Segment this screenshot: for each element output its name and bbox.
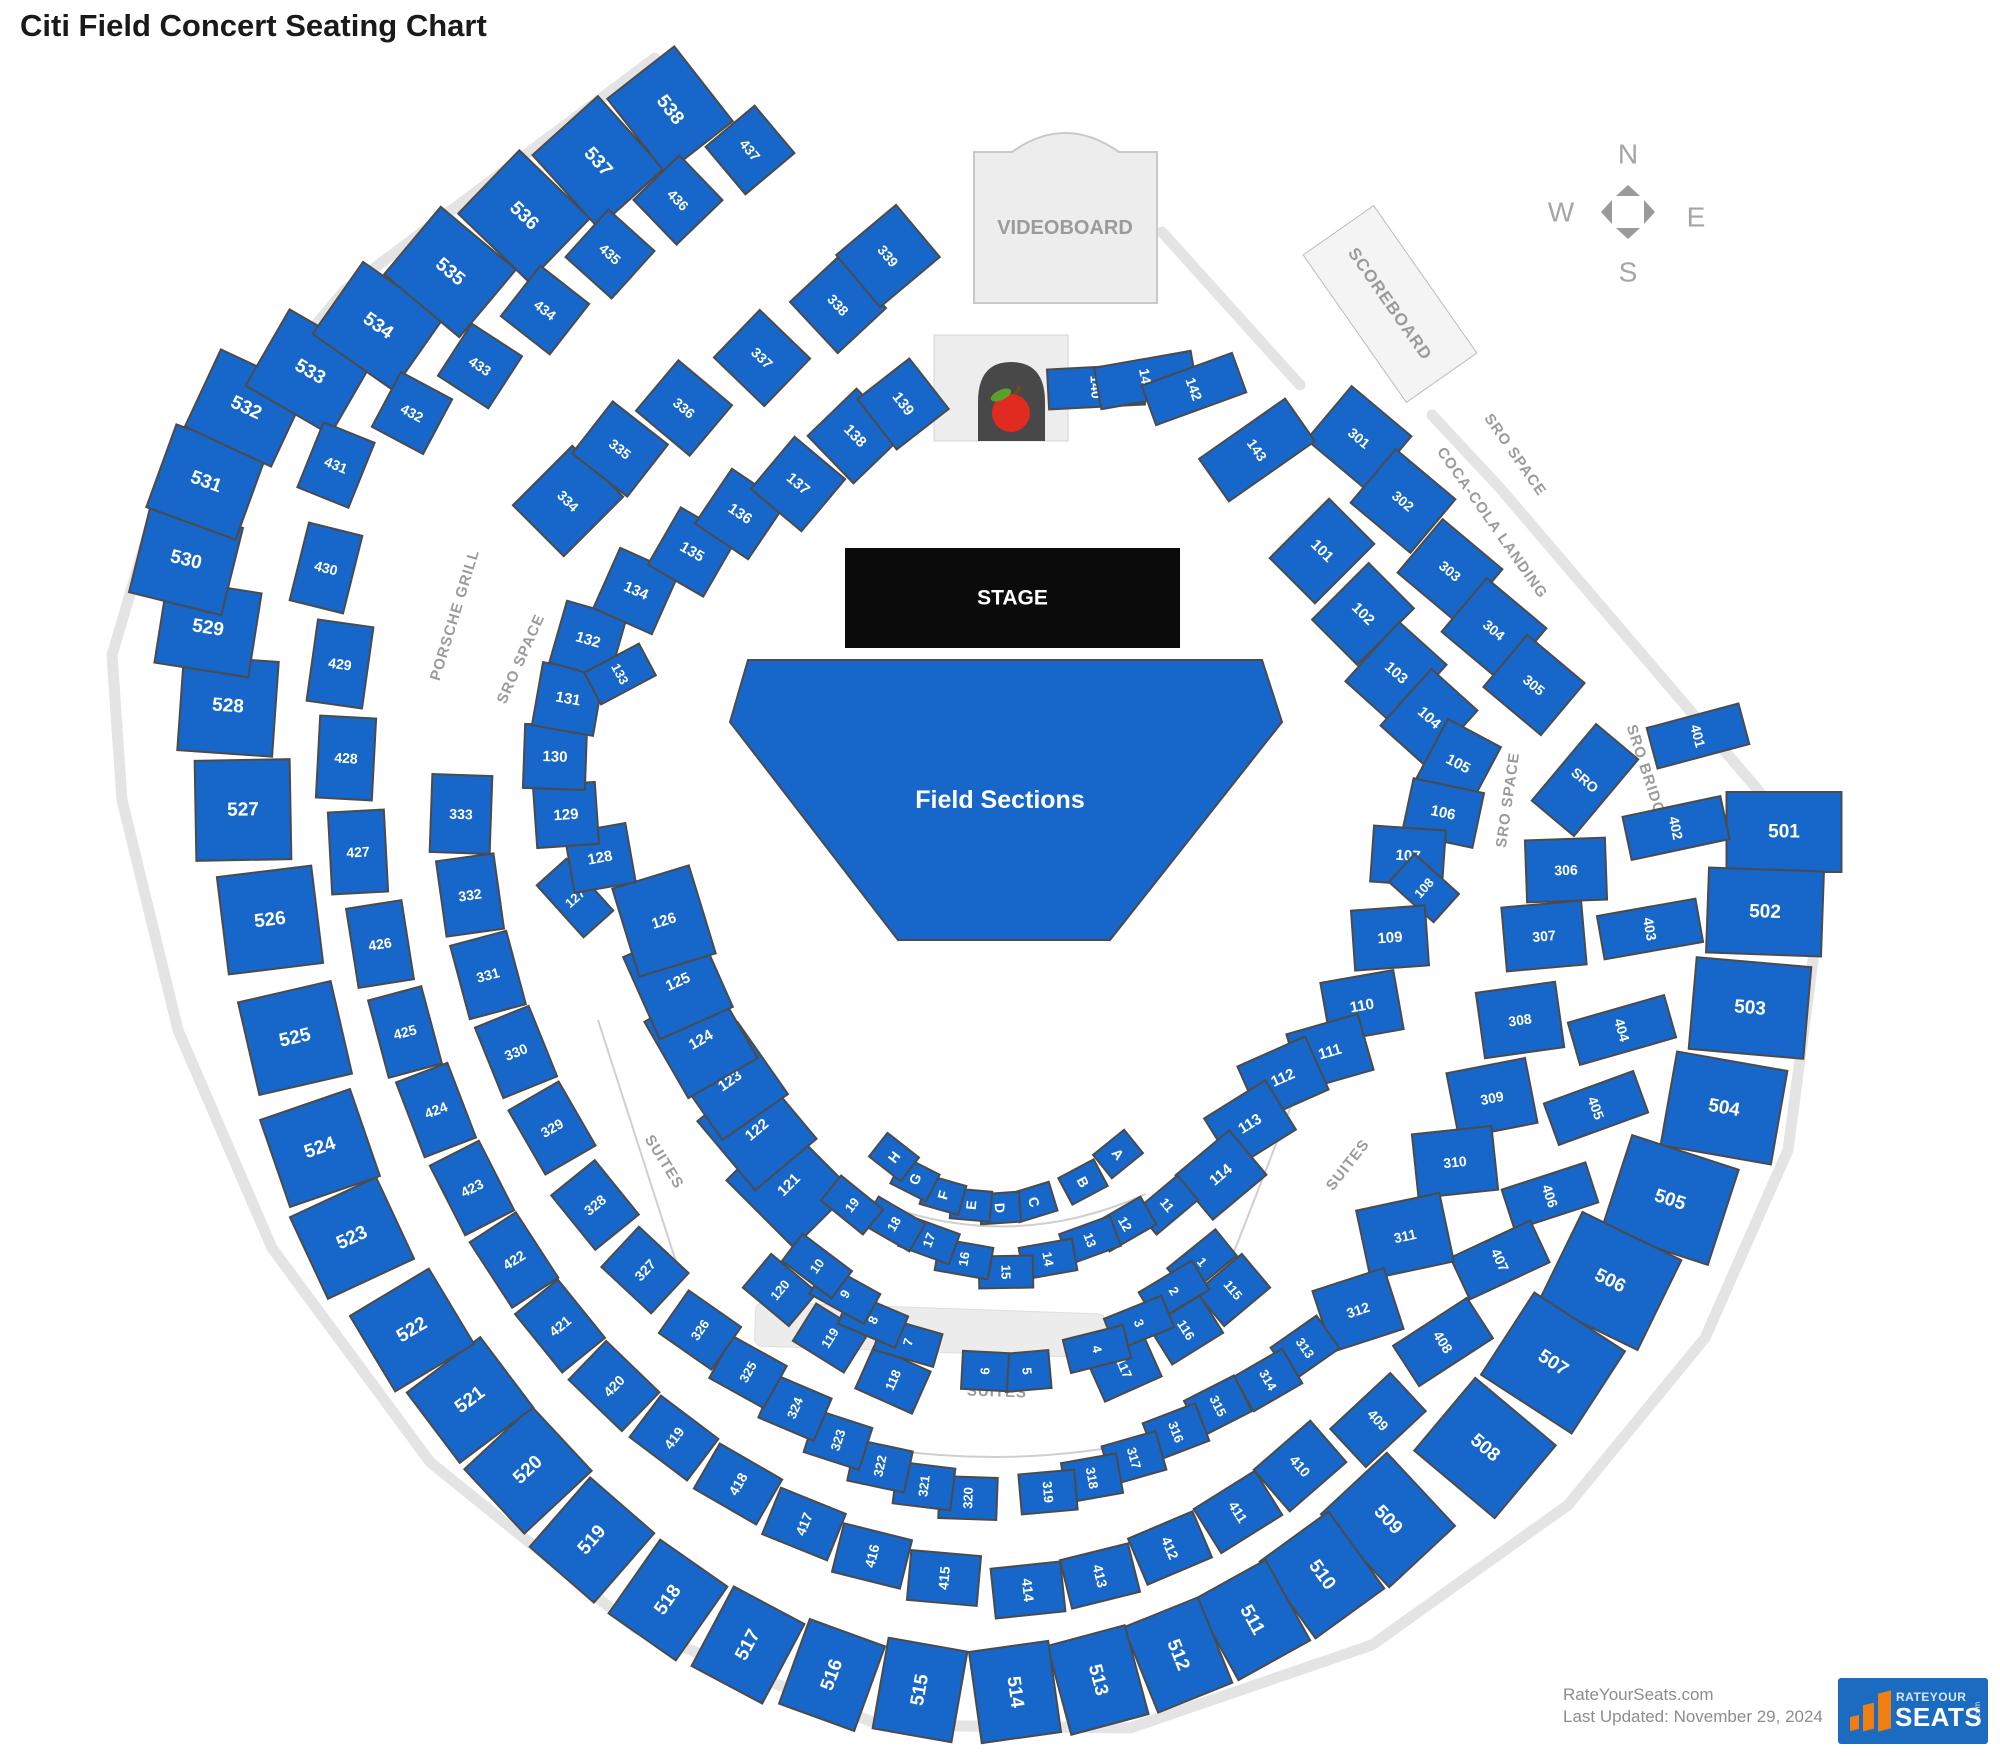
section-515[interactable]: 515 <box>873 1638 968 1742</box>
section-label: 414 <box>1019 1578 1037 1603</box>
section-405[interactable]: 405 <box>1544 1071 1648 1145</box>
footer-last-updated: Last Updated: November 29, 2024 <box>1563 1706 1823 1728</box>
section-428[interactable]: 428 <box>316 716 376 801</box>
section-label: 502 <box>1749 901 1781 923</box>
section-308[interactable]: 308 <box>1476 982 1564 1058</box>
logo-bars-icon <box>1848 1690 1892 1734</box>
section-label: 307 <box>1532 927 1557 945</box>
videoboard-label: VIDEOBOARD <box>997 217 1133 239</box>
scoreboard: SCOREBOARD <box>1303 206 1477 403</box>
section-526[interactable]: 526 <box>217 866 323 975</box>
section-434[interactable]: 434 <box>501 266 589 355</box>
section-label: 332 <box>457 885 483 904</box>
section-129[interactable]: 129 <box>533 782 599 848</box>
section-label: 320 <box>960 1487 976 1509</box>
section-label: 306 <box>1554 862 1578 879</box>
section-418[interactable]: 418 <box>694 1443 782 1524</box>
section-307[interactable]: 307 <box>1501 901 1586 972</box>
section-430[interactable]: 430 <box>290 523 363 614</box>
stadium-map: Field SectionsSTAGEVIDEOBOARDSCOREBOARDN… <box>0 0 2000 1756</box>
section-label: 528 <box>211 694 244 717</box>
section-328[interactable]: 328 <box>551 1160 639 1250</box>
section-label: 321 <box>915 1474 933 1497</box>
section-527[interactable]: 527 <box>195 759 292 861</box>
section-327[interactable]: 327 <box>601 1227 688 1314</box>
section-319[interactable]: 319 <box>1018 1470 1077 1515</box>
section-429[interactable]: 429 <box>307 620 374 709</box>
section-413[interactable]: 413 <box>1060 1543 1140 1608</box>
section-417[interactable]: 417 <box>762 1488 846 1561</box>
compass-icon: NWES <box>1548 139 1706 288</box>
section-label: 503 <box>1733 996 1766 1020</box>
section-501[interactable]: 501 <box>1727 792 1842 872</box>
section-label: 429 <box>327 654 353 673</box>
section-337[interactable]: 337 <box>714 310 810 406</box>
section-426[interactable]: 426 <box>346 900 414 988</box>
section-329[interactable]: 329 <box>508 1081 595 1174</box>
area-label-suites: SUITES <box>641 1132 687 1192</box>
section-424[interactable]: 424 <box>396 1063 476 1157</box>
section-306[interactable]: 306 <box>1525 838 1607 903</box>
section-label: 109 <box>1377 929 1403 948</box>
stage-label: STAGE <box>977 587 1048 610</box>
section-416[interactable]: 416 <box>832 1523 912 1588</box>
seating-chart-page: Citi Field Concert Seating Chart Field S… <box>0 0 2000 1756</box>
section-143[interactable]: 143 <box>1199 399 1315 502</box>
rateyourseats-logo[interactable]: RATEYOUR SEATS .com <box>1838 1678 1988 1744</box>
compass-letter-W: W <box>1548 197 1575 228</box>
section-525[interactable]: 525 <box>238 981 352 1095</box>
section-label: 308 <box>1507 1010 1533 1029</box>
section-B[interactable]: B <box>1058 1159 1107 1204</box>
section-403[interactable]: 403 <box>1597 899 1703 960</box>
section-514[interactable]: 514 <box>969 1641 1061 1743</box>
logo-text-seats: SEATS <box>1895 1702 1982 1733</box>
section-310[interactable]: 310 <box>1412 1126 1498 1198</box>
section-412[interactable]: 412 <box>1128 1511 1212 1584</box>
compass-letter-N: N <box>1618 139 1638 170</box>
section-504[interactable]: 504 <box>1661 1051 1788 1164</box>
section-408[interactable]: 408 <box>1393 1298 1493 1386</box>
footer-site-name: RateYourSeats.com <box>1563 1684 1714 1706</box>
section-433[interactable]: 433 <box>438 324 522 409</box>
section-label: 16 <box>955 1251 972 1268</box>
section-label: 415 <box>935 1565 953 1590</box>
section-label: 333 <box>449 806 473 823</box>
section-333[interactable]: 333 <box>430 774 493 854</box>
section-label: 514 <box>1002 1675 1027 1710</box>
section-label: 130 <box>542 748 568 766</box>
section-409[interactable]: 409 <box>1330 1373 1425 1467</box>
section-6[interactable]: 6 <box>961 1351 1009 1391</box>
section-5[interactable]: 5 <box>1002 1350 1051 1392</box>
section-label: 15 <box>998 1265 1013 1280</box>
section-331[interactable]: 331 <box>450 931 526 1019</box>
section-407[interactable]: 407 <box>1450 1221 1549 1300</box>
section-label: 526 <box>253 908 287 933</box>
section-431[interactable]: 431 <box>297 422 374 508</box>
section-415[interactable]: 415 <box>907 1550 981 1606</box>
section-330[interactable]: 330 <box>475 1006 557 1098</box>
area-label-sro-space: SRO SPACE <box>1493 751 1523 849</box>
section-109[interactable]: 109 <box>1351 905 1429 970</box>
section-502[interactable]: 502 <box>1706 868 1824 957</box>
section-label: 129 <box>553 806 579 825</box>
section-402[interactable]: 402 <box>1623 796 1730 860</box>
section-label: 527 <box>227 799 259 821</box>
section-404[interactable]: 404 <box>1568 995 1676 1065</box>
section-label: 427 <box>346 843 370 860</box>
field-sections-label: Field Sections <box>915 786 1084 814</box>
section-311[interactable]: 311 <box>1356 1193 1454 1279</box>
section-label: 310 <box>1443 1153 1468 1171</box>
section-label: 501 <box>1768 822 1800 843</box>
section-503[interactable]: 503 <box>1689 957 1812 1059</box>
section-332[interactable]: 332 <box>436 853 504 936</box>
section-label: 428 <box>334 749 358 766</box>
section-label: E <box>963 1200 980 1211</box>
section-label: 319 <box>1040 1481 1057 1504</box>
logo-text-dotcom: .com <box>1973 1702 1982 1719</box>
compass-letter-S: S <box>1619 257 1638 288</box>
section-425[interactable]: 425 <box>368 986 442 1078</box>
section-414[interactable]: 414 <box>991 1561 1066 1618</box>
compass-letter-E: E <box>1687 202 1706 233</box>
section-label: 6 <box>977 1367 992 1375</box>
area-label-suites: SUITES <box>1323 1136 1373 1194</box>
area-label-porsche-grill: PORSCHE GRILL <box>427 547 483 682</box>
section-label: D <box>992 1202 1009 1213</box>
section-427[interactable]: 427 <box>328 810 388 895</box>
section-label: 5 <box>1019 1367 1035 1376</box>
